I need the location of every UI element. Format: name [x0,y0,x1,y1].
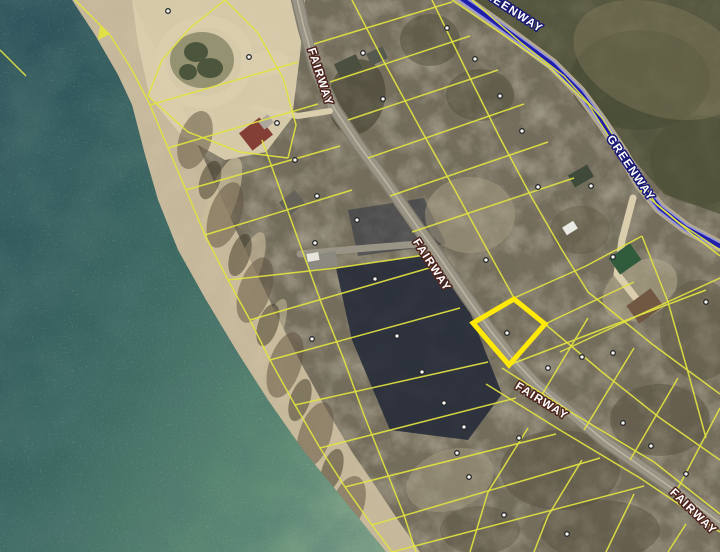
map-canvas[interactable]: FAIRWAYFAIRWAYFAIRWAYFAIRWAYGREENWAYGREE… [0,0,720,552]
grain-overlay [0,0,720,552]
aerial-parcel-map[interactable]: FAIRWAYFAIRWAYFAIRWAYFAIRWAYGREENWAYGREE… [0,0,720,552]
